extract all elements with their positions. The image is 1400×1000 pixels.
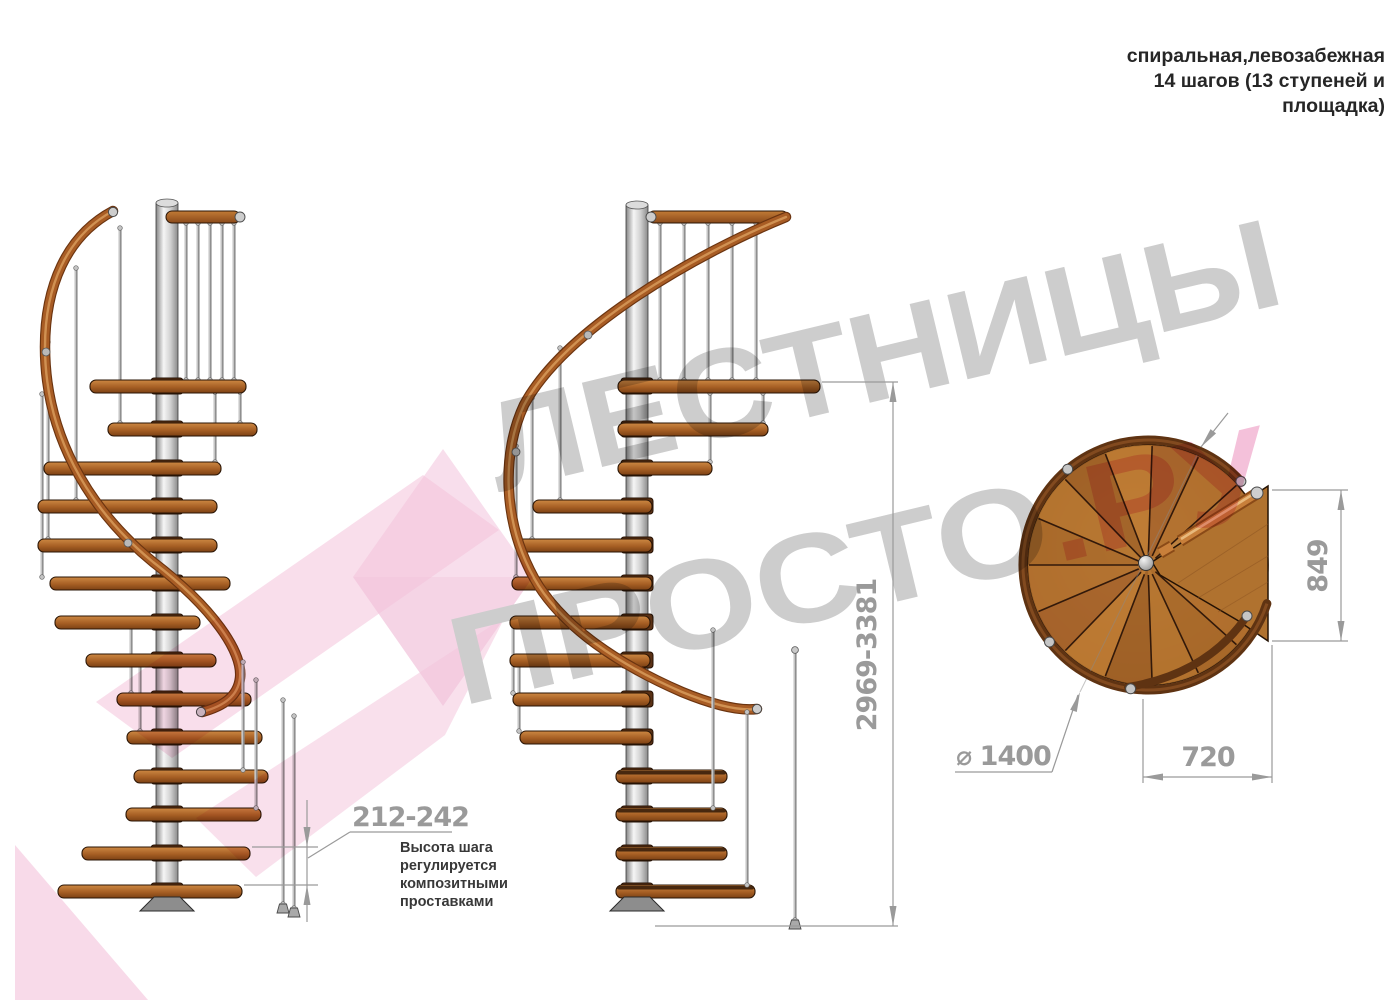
base-flange <box>610 897 664 911</box>
step-height-note: Высота шага регулируется композитными пр… <box>400 840 508 910</box>
title-line-1: спиральная,левозабежная <box>1127 45 1385 67</box>
diagram-canvas: ЛЕСТНИЦЫ ПРОСТО .РУ 2969-3381 212-242 84… <box>0 0 1400 1000</box>
dim-landing-width: 720 <box>1181 742 1235 773</box>
landing-guardrail <box>166 211 240 223</box>
title-block: спиральная,левозабежная 14 шагов (13 сту… <box>1127 45 1385 117</box>
dim-step-height: 212-242 <box>352 802 469 833</box>
note-line-1: Высота шага <box>400 840 494 856</box>
dim-landing-depth: 849 <box>1303 539 1334 593</box>
note-line-3: композитными <box>400 876 508 892</box>
title-line-3: площадка) <box>1282 95 1385 117</box>
base-flange <box>140 897 194 911</box>
dim-total-height: 2969-3381 <box>852 579 883 732</box>
watermark-logo-shape <box>15 449 533 1000</box>
dim-diameter: ⌀ 1400 <box>956 741 1051 772</box>
title-line-2: 14 шагов (13 ступеней и <box>1154 70 1385 92</box>
logo-corner-triangle <box>15 845 148 1000</box>
drawing-sheet: ЛЕСТНИЦЫ ПРОСТО .РУ 2969-3381 212-242 84… <box>0 0 1400 1000</box>
note-line-2: регулируется <box>400 858 497 874</box>
note-line-4: проставками <box>400 894 493 910</box>
